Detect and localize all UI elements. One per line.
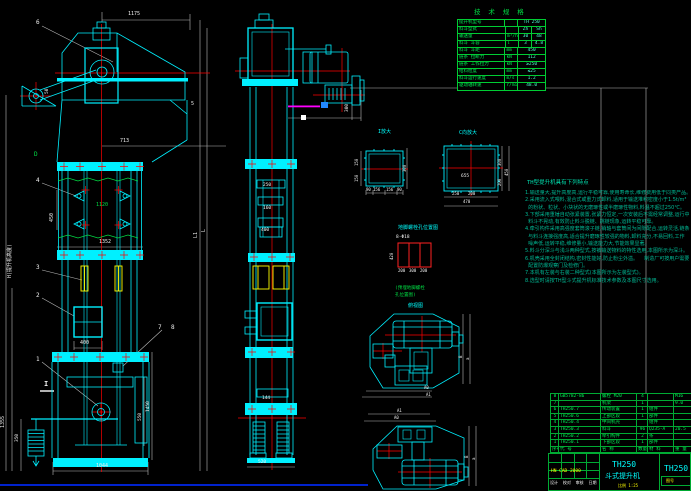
- dim-713: 713: [120, 139, 129, 144]
- white-marker: [301, 115, 306, 120]
- plan-caption: 俯视图: [408, 304, 423, 309]
- spec-row: 输送量m³/h3048: [458, 34, 545, 41]
- spec-row: 链条 拉断力kN112: [458, 55, 545, 62]
- note-line: 6.机壳采用全封闭结构,密封性能好,防止粉尘外溢。 制造厂可按用户需要: [525, 256, 691, 263]
- dim-1352: 1352: [99, 240, 111, 245]
- part-label-d: D: [34, 152, 38, 158]
- dim-1355: 1355: [1, 416, 6, 428]
- plan-view-bottom: [373, 426, 468, 489]
- title-block-line: [549, 478, 599, 479]
- dim-1450: 1450: [147, 401, 152, 412]
- plan-bot-b: B: [465, 456, 469, 458]
- title-side-box: 图号: [661, 476, 691, 486]
- plan-top-a0: A0: [424, 386, 429, 390]
- sc-450: 450: [505, 169, 509, 176]
- part-label-5: 5: [191, 102, 194, 107]
- title-name: 斗式提升机: [605, 473, 640, 480]
- dim-l: L: [202, 229, 207, 232]
- part-label-7: 7: [158, 325, 162, 331]
- bom-row: 1TH250.1下部区段1部件: [551, 440, 691, 447]
- bom-row: 3TH250.3料斗96Q235-A20.5: [551, 427, 691, 434]
- plan-bot-a: a: [472, 458, 476, 460]
- signature-row: 设计 校对 审核 日期: [550, 481, 596, 485]
- spec-row: 给料粒度mm≤25: [458, 69, 545, 76]
- si-90a: 90: [366, 188, 371, 192]
- spec-row: 料斗 斗容l34.8: [458, 41, 545, 48]
- plan-top-b: B: [459, 356, 463, 358]
- spec-table-title: 技 术 规 格: [474, 9, 526, 16]
- bom-row: 4TH250.4中间机壳组件: [551, 420, 691, 427]
- section-i-view: [364, 149, 405, 188]
- middle-view-buckets: [253, 266, 289, 289]
- left-view-breaks: [58, 178, 138, 238]
- spec-table: 提升机型号TH 250 料斗型式ZhSh 输送量m³/h3048 料斗 斗容l3…: [457, 19, 546, 91]
- dim-400: 400: [80, 341, 89, 346]
- note-line: 7.本机有左装与右装二种型式(本图所示为左装型式)。: [525, 270, 691, 277]
- bom-row: 5TH250.6上部区段1部件: [551, 414, 691, 421]
- title-block-divider: [659, 454, 660, 490]
- foundation-200a: 200: [398, 269, 405, 273]
- notes-title: TH型提升机具有下列特点: [527, 181, 589, 187]
- note-line: 2.采用流入式喂料,混合式或重力式卸料,适用于输送堆积密度小于1.5t/m³: [525, 197, 691, 204]
- plan-bot-a0: A0: [394, 416, 399, 420]
- dim-l1: L1: [194, 232, 199, 238]
- bom-table: 8GB5782-86螺栓 M204M16 7机架19.0 6TH250.7传动装…: [550, 393, 691, 453]
- note-line: 的粉状、粒状、小块状的无磨琢性或半磨琢性物料,料温不超过250℃。: [525, 205, 691, 212]
- title-scale: 比例 1:25: [618, 484, 638, 488]
- dim-300m: 300: [346, 104, 351, 112]
- sc-300: 300: [498, 159, 502, 166]
- note-line: 8.选型时请按TH型斗式提升机标准技术参数及本图尺寸选用。: [525, 278, 691, 285]
- section-mark-i: I: [44, 381, 48, 388]
- foundation-note-2: 孔位置图): [395, 294, 416, 299]
- plan-top-a1: A1: [426, 393, 431, 397]
- middle-view: [240, 14, 364, 463]
- spec-row: 驱动轴转速r/min48.0: [458, 83, 545, 90]
- dim-400b: 400: [261, 229, 269, 234]
- cad-watermark: HN CAD 2000: [551, 470, 581, 475]
- note-line: 4.牵引构件采用高强度套筒滚子链,销轴与套筒间为间隙配合,运转灵活,链条: [525, 226, 691, 233]
- dim-160: 160: [263, 207, 271, 212]
- part-label-3: 3: [36, 265, 40, 271]
- middle-view-bolt-marks: [248, 160, 295, 413]
- sc-655: 655: [461, 175, 469, 180]
- si-156b: 156: [386, 188, 393, 192]
- si-150a: 150: [355, 159, 359, 166]
- part-label-8: 8: [171, 325, 175, 331]
- si-150b: 150: [355, 175, 359, 182]
- note-line: 与料斗连接强度高,适合提升磨琢性较强的物料,卸料充分,不易回料,工作: [525, 234, 691, 241]
- foundation-300: 300: [409, 269, 416, 273]
- foundation-420: 420: [390, 253, 394, 260]
- spec-row: 料斗型式ZhSh: [458, 27, 545, 34]
- dim-144: 144: [262, 397, 270, 402]
- dim-520: 520: [258, 461, 266, 466]
- height-note: H(提升机高度): [8, 244, 13, 278]
- part-label-1: 1: [36, 357, 40, 363]
- bom-row: 2TH250.2牵引构件2条: [551, 434, 691, 441]
- dim-450: 450: [50, 213, 55, 222]
- blue-marker: [321, 102, 328, 108]
- foundation-200b: 200: [420, 269, 427, 273]
- title-model: TH250: [612, 461, 636, 469]
- spec-row: 链条 工作拉力kN≥250: [458, 62, 545, 69]
- title-side-note: 图号: [666, 479, 674, 483]
- section-i-caption: I放大: [378, 130, 391, 135]
- foundation-bolt: 8-Φ18: [396, 236, 410, 241]
- spec-row: 提升机型号TH 250: [458, 20, 545, 27]
- bom-row: 8GB5782-86螺栓 M204M16: [551, 394, 691, 401]
- dim-550: 550: [139, 413, 144, 421]
- magenta-marker: [288, 106, 320, 108]
- si-156a: 156: [373, 188, 380, 192]
- frame-line: [0, 484, 368, 486]
- section-c-caption: C向放大: [459, 131, 477, 136]
- sc-200: 200: [498, 179, 502, 186]
- si-300: 300: [403, 165, 407, 172]
- dim-250: 250: [263, 184, 271, 189]
- dim-50: 50: [46, 89, 51, 94]
- spec-row: 料斗运行速度m/s1.2: [458, 76, 545, 83]
- plan-top-a: a: [466, 358, 470, 360]
- si-90b: 90: [397, 188, 402, 192]
- foundation-bolt-layout: [398, 243, 431, 267]
- sc-470: 470: [463, 200, 470, 204]
- title-block-line: [586, 454, 587, 478]
- plan-bot-a1: A1: [397, 409, 402, 413]
- notes-block: 1.输送量大,提升高度高,运行平稳可靠,使用寿命长,维修费用低于同类产品。 2.…: [525, 190, 691, 290]
- title-model-right: TH250: [664, 465, 688, 473]
- part-label-4: 4: [36, 178, 40, 184]
- cad-canvas: { "colors":{"cad_cyan":"#00f0ff","cad_re…: [0, 0, 691, 491]
- title-block-divider: [599, 454, 600, 490]
- sc-200b: 200: [468, 192, 475, 196]
- bom-row: 7机架19.0: [551, 401, 691, 408]
- note-line: 5.料斗分深斗与浅斗两种型式,按被输送物料的特性选用,本图所示为深斗。: [525, 248, 691, 255]
- dim-350: 350: [16, 434, 21, 442]
- part-label-2: 2: [36, 293, 40, 299]
- dim-1120: 1120: [96, 203, 108, 208]
- spec-row: 料斗 斗距mm450: [458, 48, 545, 55]
- part-label-6: 6: [36, 20, 40, 26]
- foundation-caption: 地脚螺栓孔位置图: [398, 226, 438, 231]
- dim-1044: 1044: [96, 464, 108, 469]
- bom-row: 6TH250.7传动装置1组件: [551, 407, 691, 414]
- dim-1175: 1175: [128, 12, 140, 17]
- foundation-note-1: (预埋地脚螺栓: [395, 287, 425, 292]
- sc-250b: 250: [452, 192, 459, 196]
